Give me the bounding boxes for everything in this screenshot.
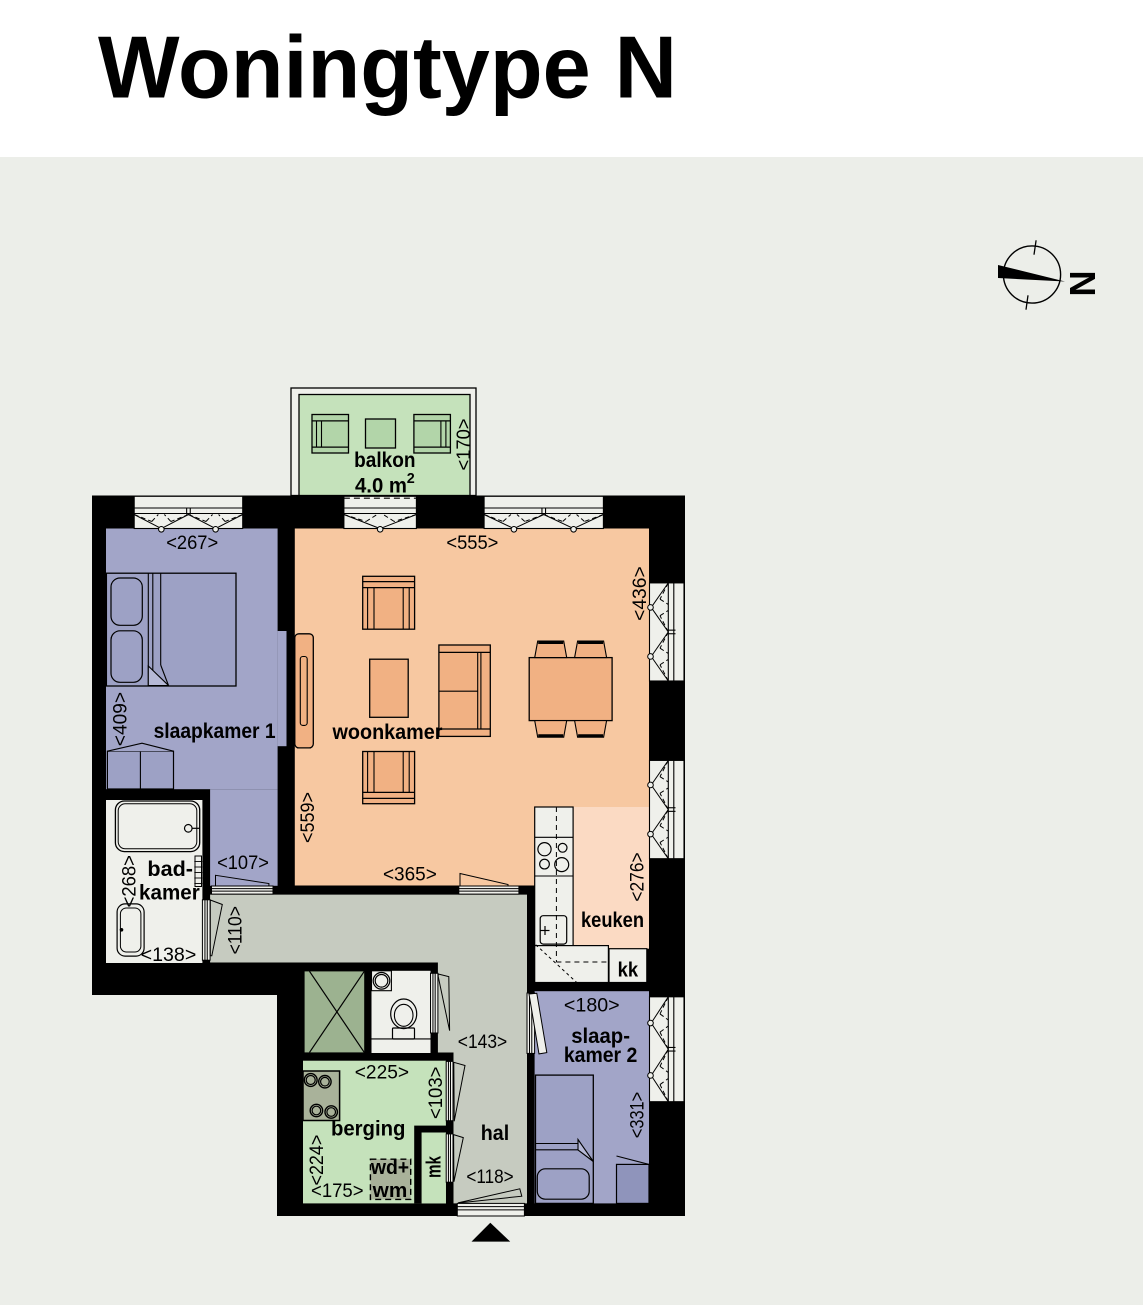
- svg-text:2: 2: [407, 470, 415, 487]
- svg-text:kamer: kamer: [139, 882, 200, 905]
- svg-text:<103>: <103>: [426, 1067, 447, 1120]
- svg-text:<107>: <107>: [217, 853, 269, 874]
- svg-text:balkon: balkon: [354, 449, 415, 472]
- svg-text:<180>: <180>: [564, 996, 620, 1017]
- svg-text:<225>: <225>: [355, 1063, 409, 1084]
- svg-text:<118>: <118>: [466, 1167, 513, 1188]
- svg-text:<436>: <436>: [630, 566, 651, 621]
- svg-text:<170>: <170>: [454, 419, 475, 471]
- svg-text:<110>: <110>: [226, 906, 247, 954]
- svg-text:<331>: <331>: [628, 1092, 649, 1138]
- svg-text:<409>: <409>: [111, 692, 132, 746]
- svg-text:bad-: bad-: [147, 858, 193, 881]
- svg-text:<365>: <365>: [383, 865, 437, 886]
- svg-text:<555>: <555>: [446, 533, 498, 554]
- svg-text:wm: wm: [372, 1180, 408, 1202]
- svg-text:wd+: wd+: [370, 1157, 409, 1179]
- svg-text:<267>: <267>: [166, 533, 218, 554]
- svg-text:4.0 m: 4.0 m: [355, 475, 407, 498]
- svg-text:keuken: keuken: [581, 909, 644, 932]
- svg-text:<268>: <268>: [120, 855, 141, 907]
- svg-text:hal: hal: [481, 1122, 509, 1145]
- svg-text:woonkamer: woonkamer: [332, 721, 443, 744]
- svg-text:<143>: <143>: [458, 1032, 507, 1053]
- svg-text:N: N: [1062, 271, 1103, 297]
- svg-text:<224>: <224>: [307, 1135, 328, 1186]
- svg-text:kamer 2: kamer 2: [564, 1044, 638, 1067]
- svg-text:mk: mk: [423, 1155, 445, 1178]
- svg-text:slaapkamer 1: slaapkamer 1: [154, 720, 276, 743]
- svg-text:berging: berging: [331, 1118, 406, 1141]
- svg-text:kk: kk: [618, 960, 639, 982]
- svg-text:<138>: <138>: [141, 945, 197, 966]
- svg-text:<559>: <559>: [298, 792, 319, 843]
- svg-text:Woningtype N: Woningtype N: [98, 18, 677, 117]
- svg-text:<276>: <276>: [628, 852, 649, 901]
